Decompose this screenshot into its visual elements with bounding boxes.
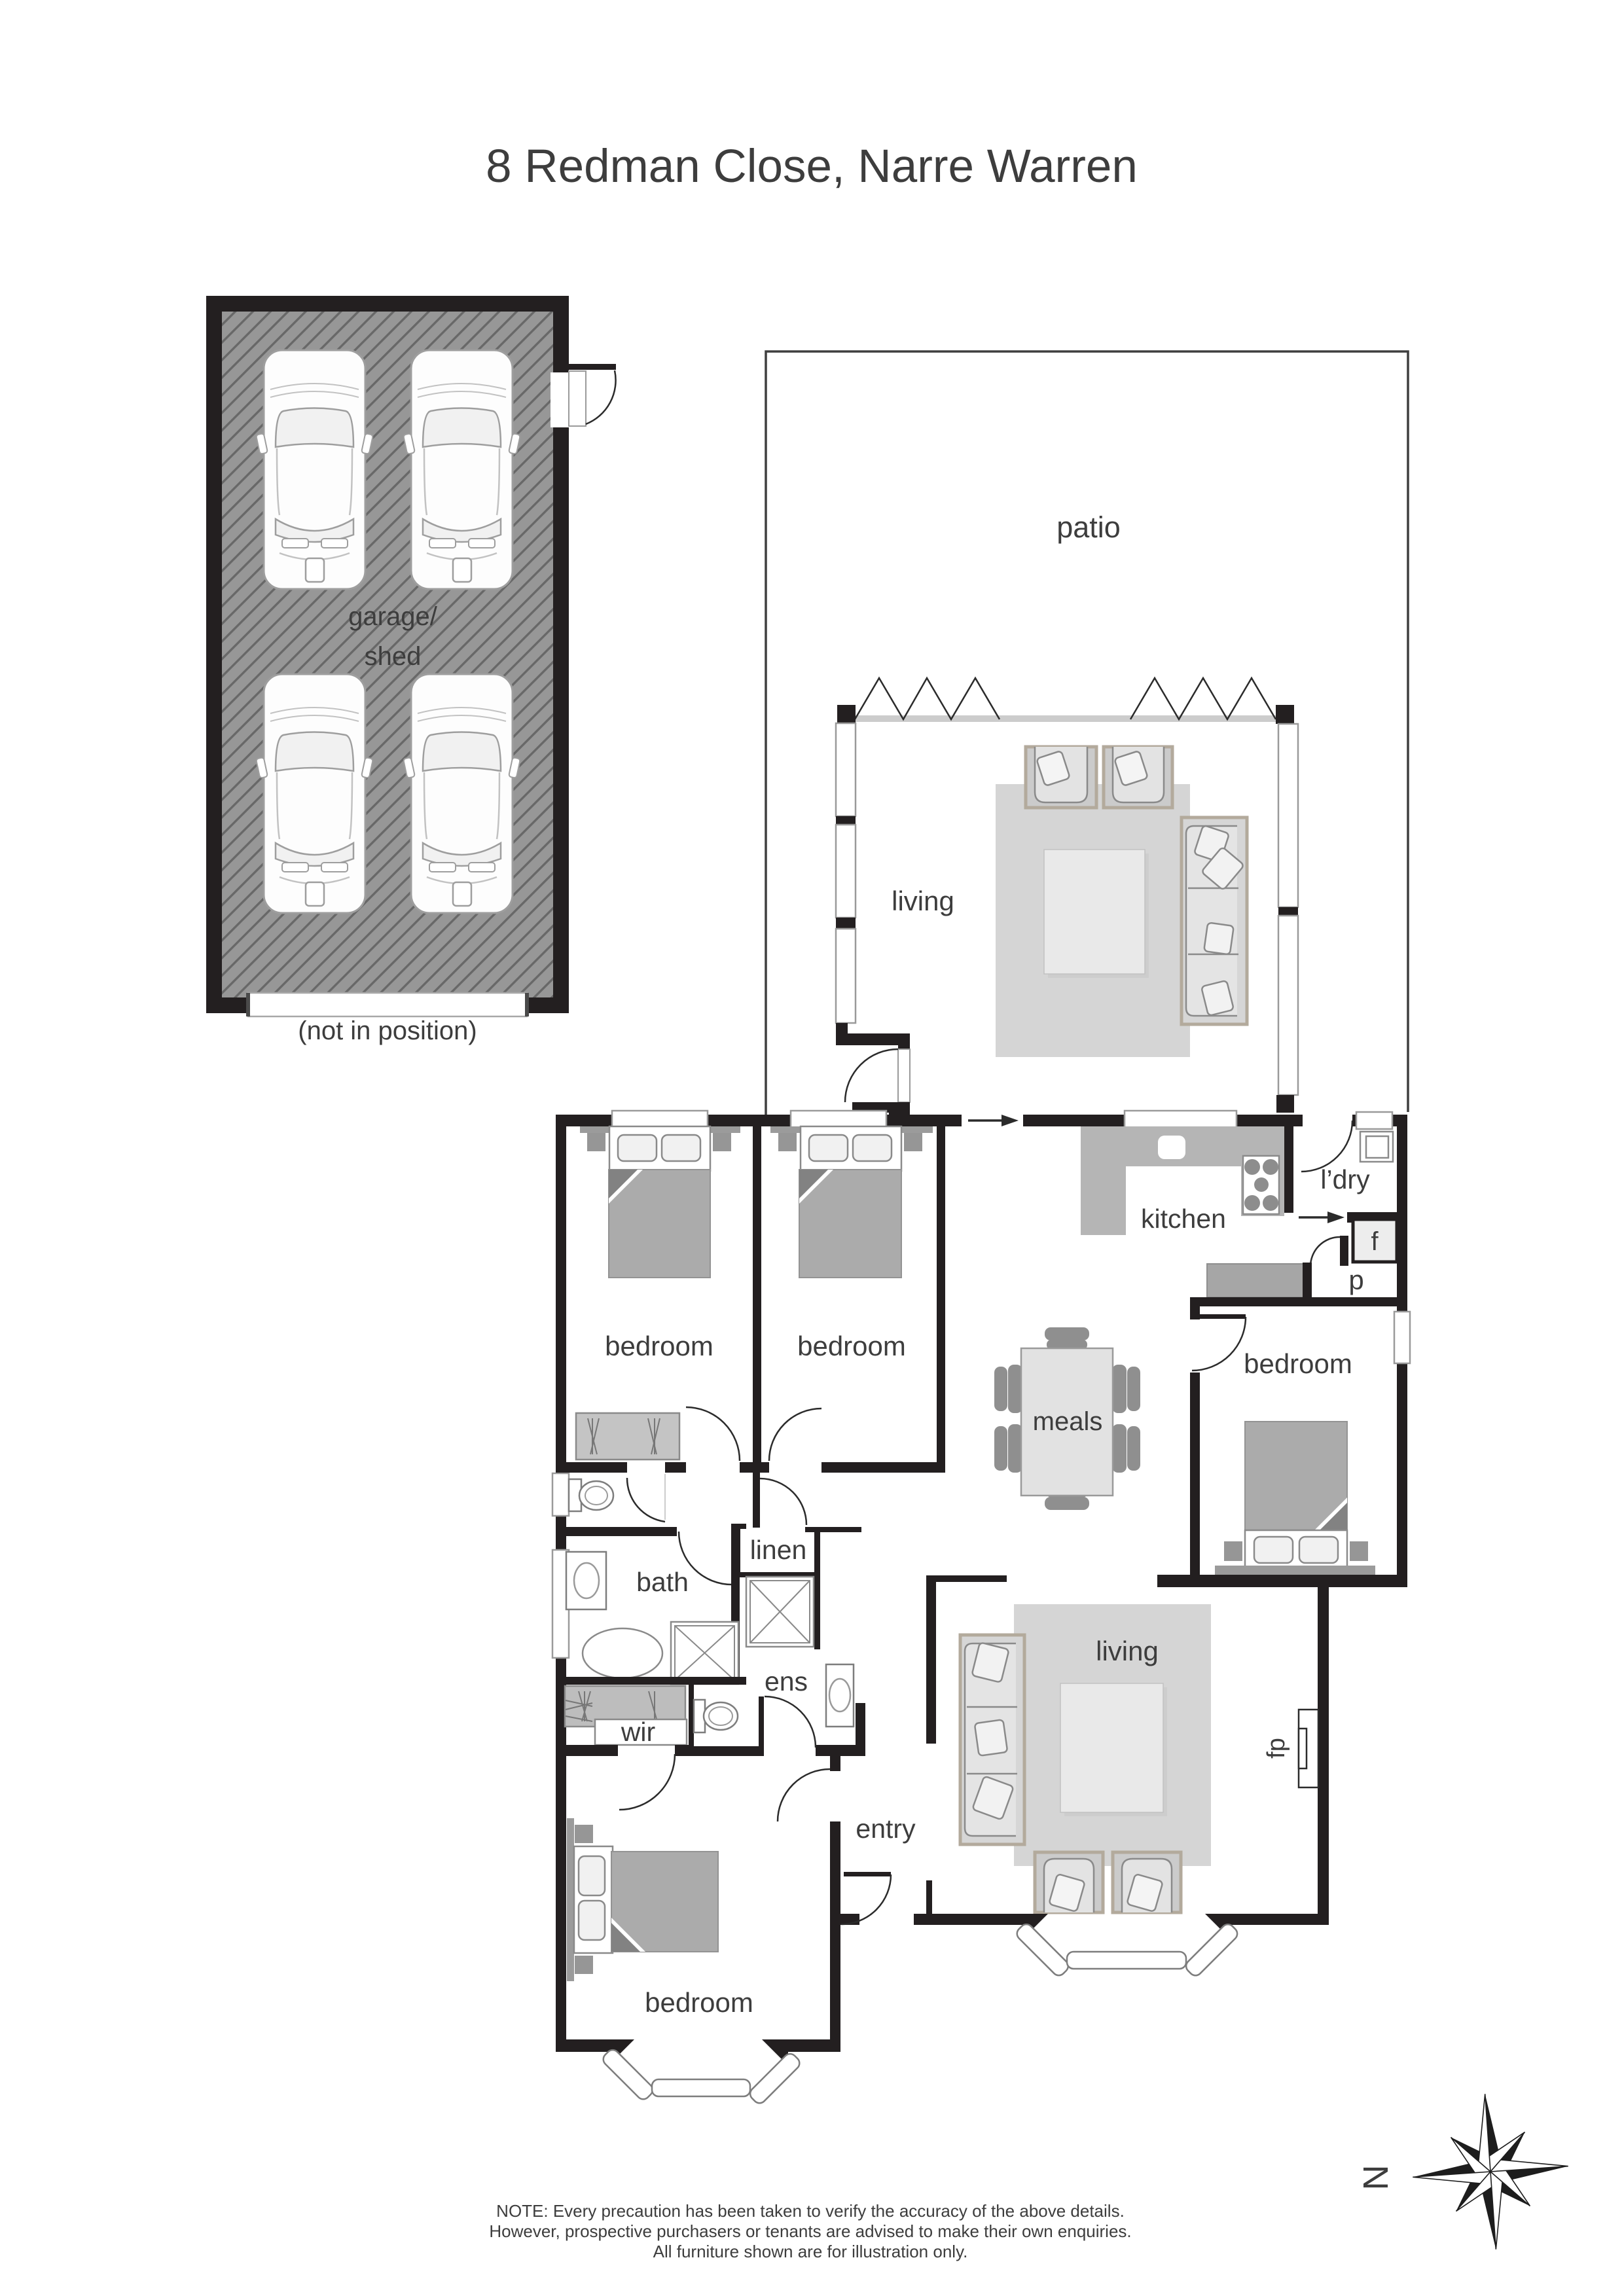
- svg-text:entry: entry: [856, 1814, 916, 1844]
- svg-text:bath: bath: [636, 1567, 689, 1597]
- svg-text:fp: fp: [1263, 1738, 1290, 1759]
- svg-text:meals: meals: [1033, 1407, 1103, 1436]
- svg-text:wir: wir: [621, 1717, 655, 1747]
- svg-text:living: living: [892, 886, 954, 916]
- svg-text:patio: patio: [1056, 511, 1121, 544]
- svg-text:f: f: [1371, 1227, 1379, 1256]
- svg-text:living: living: [1096, 1636, 1159, 1666]
- svg-text:8 Redman Close, Narre Warren: 8 Redman Close, Narre Warren: [486, 141, 1138, 192]
- svg-text:garage/: garage/: [348, 602, 438, 631]
- svg-text:p: p: [1348, 1265, 1363, 1295]
- svg-text:linen: linen: [750, 1535, 807, 1565]
- svg-text:shed: shed: [365, 642, 422, 671]
- svg-text:l’dry: l’dry: [1320, 1164, 1370, 1194]
- svg-text:However, prospective purchaser: However, prospective purchasers or tenan…: [489, 2221, 1131, 2241]
- svg-text:bedroom: bedroom: [797, 1331, 906, 1361]
- svg-text:(not in position): (not in position): [298, 1016, 477, 1045]
- svg-text:All furniture shown are for il: All furniture shown are for illustration…: [653, 2242, 968, 2261]
- svg-text:ens: ens: [765, 1666, 808, 1696]
- svg-text:bedroom: bedroom: [605, 1331, 713, 1361]
- svg-text:NOTE: Every precaution has bee: NOTE: Every precaution has been taken to…: [496, 2201, 1125, 2221]
- svg-text:kitchen: kitchen: [1141, 1204, 1226, 1234]
- svg-text:bedroom: bedroom: [645, 1987, 753, 2018]
- svg-text:bedroom: bedroom: [1244, 1348, 1352, 1379]
- svg-text:N: N: [1356, 2165, 1396, 2191]
